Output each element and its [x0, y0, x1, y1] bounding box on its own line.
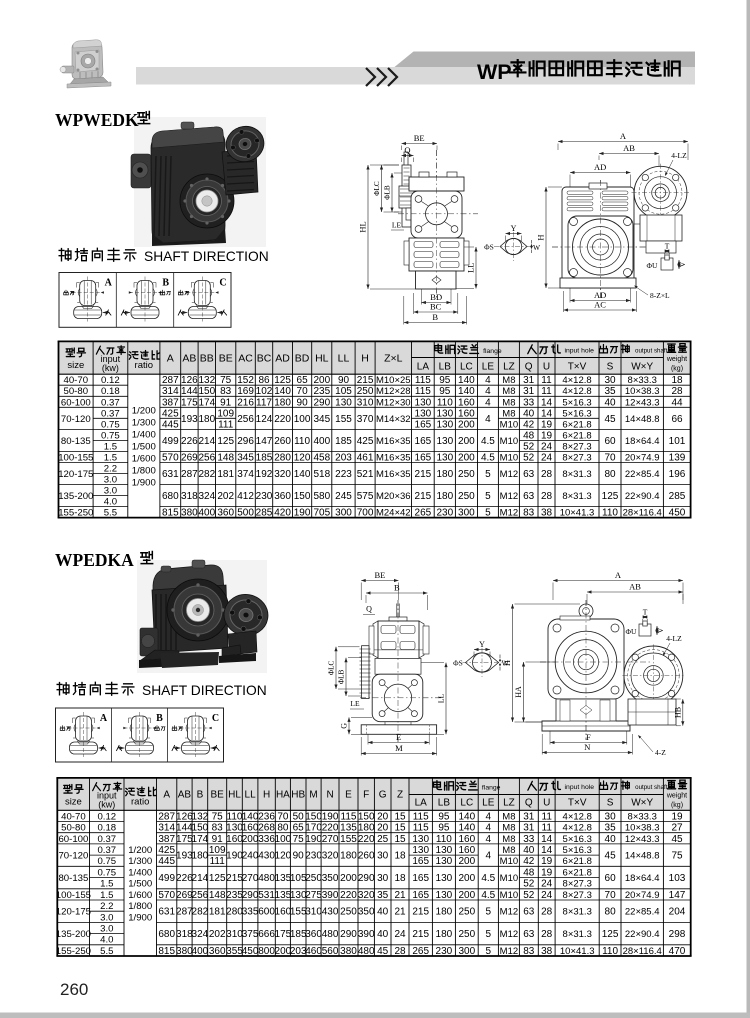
svg-text:S: S: [607, 362, 614, 373]
svg-text:160: 160: [458, 834, 475, 845]
svg-text:461: 461: [357, 452, 374, 463]
svg-text:A: A: [163, 790, 170, 801]
svg-text:180: 180: [436, 491, 453, 502]
svg-text:5: 5: [485, 491, 491, 502]
svg-text:290: 290: [340, 929, 357, 940]
svg-text:M10: M10: [500, 452, 518, 463]
svg-text:180: 180: [436, 907, 453, 918]
svg-text:20: 20: [377, 811, 389, 822]
svg-text:A: A: [105, 278, 113, 289]
svg-text:5: 5: [486, 907, 492, 918]
svg-text:260: 260: [60, 980, 88, 999]
svg-text:ΦLC: ΦLC: [373, 181, 381, 196]
svg-text:256: 256: [237, 414, 254, 425]
svg-text:86: 86: [258, 375, 270, 386]
svg-text:275: 275: [305, 890, 322, 901]
svg-text:6×21.8: 6×21.8: [563, 856, 592, 867]
svg-text:52: 52: [523, 890, 535, 901]
svg-text:31: 31: [523, 375, 535, 386]
svg-text:160: 160: [458, 408, 475, 419]
svg-text:21: 21: [394, 907, 406, 918]
svg-text:3.0: 3.0: [104, 486, 117, 497]
svg-text:180: 180: [358, 823, 375, 834]
svg-text:215: 215: [412, 929, 429, 940]
svg-text:130: 130: [415, 397, 432, 408]
svg-text:N: N: [326, 790, 333, 801]
svg-text:425: 425: [162, 408, 179, 419]
svg-text:314: 314: [162, 386, 179, 397]
svg-text:270: 270: [322, 834, 339, 845]
svg-text:input hole: input hole: [564, 348, 594, 355]
svg-text:50: 50: [293, 811, 305, 822]
svg-text:LL: LL: [245, 790, 257, 801]
svg-text:220: 220: [322, 823, 339, 834]
svg-text:24: 24: [541, 890, 553, 901]
svg-text:M12: M12: [500, 491, 518, 502]
svg-text:165: 165: [412, 890, 429, 901]
svg-text:SHAFT DIRECTION: SHAFT DIRECTION: [142, 683, 267, 698]
svg-text:A: A: [167, 353, 174, 365]
svg-text:130: 130: [436, 873, 453, 884]
svg-text:HA: HA: [514, 686, 523, 698]
svg-text:27: 27: [671, 823, 683, 834]
svg-text:4-LZ: 4-LZ: [666, 634, 682, 643]
svg-text:A: A: [620, 131, 627, 141]
svg-text:M8: M8: [502, 811, 515, 822]
svg-text:35: 35: [604, 386, 616, 397]
svg-text:18×64.4: 18×64.4: [625, 873, 660, 884]
svg-text:140: 140: [274, 386, 291, 397]
svg-text:M12×28: M12×28: [376, 386, 411, 397]
svg-text:2.2: 2.2: [100, 901, 113, 912]
svg-text:(kw): (kw): [98, 799, 115, 809]
svg-text:BC: BC: [257, 353, 272, 365]
svg-text:18×64.4: 18×64.4: [625, 436, 660, 447]
svg-text:260: 260: [358, 851, 375, 862]
svg-text:287: 287: [158, 811, 175, 822]
svg-text:1/400: 1/400: [132, 429, 156, 440]
svg-text:4×12.8: 4×12.8: [563, 823, 592, 834]
svg-text:374: 374: [237, 469, 254, 480]
svg-text:631: 631: [158, 907, 175, 918]
svg-text:52: 52: [523, 441, 535, 452]
svg-text:B: B: [197, 790, 204, 801]
svg-text:174: 174: [192, 834, 209, 845]
svg-text:110: 110: [436, 834, 452, 845]
svg-text:45: 45: [671, 834, 683, 845]
svg-text:ratio: ratio: [135, 360, 153, 371]
svg-text:E: E: [396, 732, 401, 742]
svg-text:370: 370: [357, 414, 374, 425]
svg-text:215: 215: [415, 491, 432, 502]
svg-text:130: 130: [436, 436, 453, 447]
svg-text:600: 600: [258, 907, 275, 918]
svg-text:165: 165: [415, 452, 432, 463]
svg-text:3.0: 3.0: [100, 924, 113, 935]
svg-text:14: 14: [541, 397, 553, 408]
svg-text:40: 40: [377, 907, 389, 918]
svg-text:1/200: 1/200: [132, 405, 156, 416]
svg-text:110: 110: [227, 811, 243, 822]
svg-text:2.2: 2.2: [104, 464, 117, 475]
svg-text:M: M: [309, 790, 317, 801]
svg-text:155: 155: [335, 414, 352, 425]
svg-text:14×48.8: 14×48.8: [625, 414, 660, 425]
svg-text:109: 109: [217, 408, 234, 419]
svg-text:BB: BB: [200, 353, 214, 365]
svg-text:202: 202: [209, 929, 226, 940]
svg-text:33: 33: [523, 834, 535, 845]
svg-text:256: 256: [192, 890, 209, 901]
svg-text:8×31.3: 8×31.3: [562, 469, 591, 480]
svg-text:215: 215: [226, 873, 243, 884]
svg-text:B: B: [162, 278, 169, 289]
svg-text:20: 20: [377, 823, 389, 834]
svg-text:BE: BE: [211, 790, 225, 801]
svg-text:19: 19: [541, 419, 553, 430]
svg-text:200: 200: [458, 873, 475, 884]
svg-text:42: 42: [523, 419, 535, 430]
svg-text:LE: LE: [482, 798, 495, 809]
svg-text:15: 15: [394, 823, 406, 834]
svg-text:24: 24: [541, 879, 553, 890]
svg-text:181: 181: [217, 469, 234, 480]
svg-text:45: 45: [605, 851, 617, 862]
svg-text:11: 11: [542, 823, 553, 834]
svg-text:375: 375: [242, 929, 259, 940]
svg-text:100-155: 100-155: [56, 890, 91, 901]
svg-text:M20×36: M20×36: [376, 491, 411, 502]
svg-text:190: 190: [226, 851, 243, 862]
svg-text:80-135: 80-135: [61, 436, 91, 447]
svg-text:200: 200: [313, 375, 330, 386]
svg-text:52: 52: [523, 452, 535, 463]
svg-text:115: 115: [415, 386, 431, 397]
svg-text:M10×25: M10×25: [376, 375, 411, 386]
svg-text:204: 204: [669, 907, 686, 918]
svg-text:F: F: [363, 790, 369, 801]
svg-text:148: 148: [217, 452, 234, 463]
svg-text:M12: M12: [500, 469, 518, 480]
svg-text:95: 95: [438, 823, 450, 834]
svg-text:150: 150: [192, 823, 209, 834]
svg-text:240: 240: [242, 851, 259, 862]
svg-text:135-200: 135-200: [58, 491, 93, 502]
svg-text:269: 269: [181, 452, 198, 463]
svg-text:SHAFT DIRECTION: SHAFT DIRECTION: [144, 249, 269, 264]
svg-text:125: 125: [602, 929, 619, 940]
svg-text:ΦS: ΦS: [453, 659, 463, 668]
svg-text:H: H: [361, 353, 369, 365]
svg-text:1/600: 1/600: [128, 890, 152, 901]
svg-text:60-100: 60-100: [61, 397, 91, 408]
svg-text:0.75: 0.75: [101, 430, 120, 441]
svg-text:40: 40: [523, 845, 535, 856]
svg-text:M16×35: M16×35: [376, 452, 411, 463]
svg-text:HA: HA: [276, 790, 290, 801]
svg-text:4×12.8: 4×12.8: [562, 375, 591, 386]
svg-text:HB: HB: [673, 707, 682, 718]
svg-text:180: 180: [340, 851, 357, 862]
svg-text:320: 320: [358, 890, 375, 901]
svg-text:70-120: 70-120: [61, 414, 91, 425]
svg-text:75: 75: [212, 811, 224, 822]
svg-text:320: 320: [274, 469, 291, 480]
svg-text:80-135: 80-135: [58, 873, 88, 884]
svg-text:200: 200: [458, 436, 475, 447]
svg-text:130: 130: [436, 856, 453, 867]
svg-text:215: 215: [357, 375, 374, 386]
svg-text:LA: LA: [415, 798, 428, 809]
svg-text:5×16.3: 5×16.3: [562, 397, 591, 408]
svg-text:140: 140: [294, 469, 311, 480]
svg-text:flange: flange: [482, 785, 501, 792]
svg-text:4: 4: [486, 823, 492, 834]
svg-text:102: 102: [256, 386, 273, 397]
svg-text:14: 14: [541, 408, 553, 419]
svg-text:30: 30: [604, 375, 616, 386]
svg-text:0.75: 0.75: [97, 867, 116, 878]
svg-text:345: 345: [237, 452, 254, 463]
svg-text:input hole: input hole: [565, 784, 595, 791]
svg-text:HL: HL: [315, 353, 329, 365]
svg-text:100: 100: [275, 834, 292, 845]
svg-text:115: 115: [413, 823, 429, 834]
svg-text:WP: WP: [477, 60, 512, 84]
svg-text:6×21.8: 6×21.8: [562, 419, 591, 430]
svg-text:M14×32: M14×32: [376, 414, 411, 425]
svg-text:M10: M10: [500, 419, 518, 430]
svg-text:250: 250: [458, 907, 475, 918]
svg-text:165: 165: [415, 419, 432, 430]
svg-text:140: 140: [458, 386, 475, 397]
svg-text:196: 196: [669, 469, 686, 480]
svg-text:499: 499: [158, 873, 175, 884]
svg-text:1/600: 1/600: [132, 453, 156, 464]
svg-text:Q: Q: [366, 605, 372, 614]
svg-text:360: 360: [305, 929, 322, 940]
svg-text:M16×35: M16×35: [376, 436, 411, 447]
svg-text:570: 570: [162, 452, 179, 463]
svg-text:336: 336: [258, 834, 275, 845]
svg-text:63: 63: [523, 491, 535, 502]
svg-text:24: 24: [394, 929, 406, 940]
svg-text:70: 70: [604, 452, 616, 463]
svg-text:250: 250: [305, 873, 322, 884]
svg-text:310: 310: [305, 907, 322, 918]
svg-text:345: 345: [313, 414, 330, 425]
svg-text:290: 290: [313, 397, 330, 408]
svg-text:120: 120: [275, 851, 292, 862]
svg-text:430: 430: [258, 851, 275, 862]
svg-text:flange: flange: [483, 348, 502, 355]
svg-text:126: 126: [181, 375, 198, 386]
svg-text:350: 350: [358, 907, 375, 918]
svg-text:230: 230: [305, 851, 322, 862]
svg-text:0.37: 0.37: [97, 834, 116, 845]
svg-text:75: 75: [293, 834, 305, 845]
svg-text:480: 480: [322, 929, 339, 940]
svg-text:H: H: [263, 790, 270, 801]
svg-text:8-Z×L: 8-Z×L: [650, 291, 670, 300]
svg-text:412: 412: [237, 491, 254, 502]
svg-text:28: 28: [541, 929, 553, 940]
svg-text:132: 132: [198, 375, 215, 386]
svg-text:M: M: [395, 743, 403, 753]
svg-text:Z: Z: [397, 790, 403, 801]
svg-text:4: 4: [486, 851, 492, 862]
svg-text:160: 160: [458, 845, 475, 856]
svg-text:19: 19: [541, 867, 553, 878]
svg-text:268: 268: [258, 823, 275, 834]
svg-text:8×27.3: 8×27.3: [563, 890, 592, 901]
svg-text:216: 216: [237, 397, 254, 408]
svg-text:1.5: 1.5: [100, 890, 113, 901]
svg-text:83: 83: [212, 823, 224, 834]
svg-text:4×12.8: 4×12.8: [563, 811, 592, 822]
svg-text:260: 260: [274, 436, 291, 447]
svg-text:160: 160: [242, 823, 259, 834]
svg-text:Q: Q: [404, 145, 410, 155]
svg-text:20×74.9: 20×74.9: [625, 452, 660, 463]
svg-text:24: 24: [541, 441, 553, 452]
svg-text:318: 318: [181, 491, 198, 502]
svg-text:190: 190: [305, 834, 322, 845]
svg-text:5×16.3: 5×16.3: [563, 834, 592, 845]
svg-text:1.5: 1.5: [104, 441, 117, 452]
svg-text:3.0: 3.0: [104, 475, 117, 486]
svg-text:28: 28: [671, 386, 683, 397]
svg-text:M8: M8: [502, 823, 515, 834]
svg-text:109: 109: [209, 845, 226, 856]
svg-text:8×31.3: 8×31.3: [562, 491, 591, 502]
svg-text:4.5: 4.5: [481, 436, 495, 447]
svg-text:174: 174: [198, 397, 215, 408]
svg-text:ΦLC: ΦLC: [328, 660, 336, 675]
svg-text:90: 90: [293, 851, 305, 862]
svg-text:0.18: 0.18: [101, 386, 120, 397]
svg-text:18: 18: [394, 873, 406, 884]
svg-text:80: 80: [277, 823, 289, 834]
svg-text:165: 165: [415, 436, 432, 447]
svg-text:215: 215: [415, 469, 432, 480]
svg-text:ΦLB: ΦLB: [384, 185, 392, 200]
svg-text:W×Y: W×Y: [631, 362, 653, 373]
svg-text:BE: BE: [374, 570, 385, 580]
svg-text:250: 250: [458, 929, 475, 940]
svg-text:0.18: 0.18: [97, 823, 116, 834]
svg-text:LC: LC: [460, 362, 473, 373]
svg-text:111: 111: [210, 856, 226, 867]
svg-text:445: 445: [162, 419, 179, 430]
svg-text:290: 290: [242, 890, 259, 901]
svg-text:282: 282: [198, 469, 215, 480]
svg-text:21: 21: [394, 890, 406, 901]
svg-text:140: 140: [458, 375, 475, 386]
svg-text:180: 180: [274, 397, 291, 408]
svg-text:220: 220: [274, 414, 291, 425]
svg-text:18: 18: [394, 851, 406, 862]
svg-text:40: 40: [377, 929, 389, 940]
svg-text:19: 19: [671, 811, 683, 822]
svg-text:83: 83: [220, 386, 232, 397]
svg-text:30: 30: [377, 873, 389, 884]
svg-text:weight: weight: [666, 793, 687, 800]
svg-text:120: 120: [294, 452, 311, 463]
svg-text:8×27.3: 8×27.3: [562, 452, 591, 463]
svg-text:output shaft: output shaft: [635, 784, 668, 791]
svg-text:214: 214: [198, 436, 215, 447]
svg-text:4: 4: [486, 834, 492, 845]
svg-text:140: 140: [458, 823, 475, 834]
svg-text:147: 147: [669, 890, 686, 901]
svg-text:185: 185: [335, 436, 352, 447]
svg-text:287: 287: [162, 375, 179, 386]
svg-text:256: 256: [198, 452, 215, 463]
svg-text:LB: LB: [438, 798, 451, 809]
svg-text:70: 70: [297, 386, 309, 397]
svg-text:19: 19: [541, 430, 553, 441]
svg-text:65: 65: [293, 823, 305, 834]
svg-text:8×33.3: 8×33.3: [628, 375, 657, 386]
svg-text:M16×35: M16×35: [376, 469, 411, 480]
svg-text:AB: AB: [178, 790, 192, 801]
svg-text:LA: LA: [417, 362, 430, 373]
svg-text:(kg): (kg): [671, 366, 683, 373]
svg-text:132: 132: [192, 811, 209, 822]
svg-text:200: 200: [458, 890, 475, 901]
svg-text:8×33.3: 8×33.3: [628, 811, 657, 822]
svg-text:22×85.4: 22×85.4: [625, 469, 660, 480]
svg-text:W×Y: W×Y: [631, 798, 653, 809]
svg-text:output shaft: output shaft: [635, 348, 668, 355]
svg-text:5: 5: [486, 929, 492, 940]
svg-text:282: 282: [192, 907, 209, 918]
svg-text:521: 521: [357, 469, 374, 480]
svg-text:518: 518: [313, 469, 330, 480]
svg-text:110: 110: [294, 436, 310, 447]
svg-text:580: 580: [313, 491, 330, 502]
svg-text:570: 570: [158, 890, 175, 901]
svg-text:B: B: [432, 312, 438, 322]
svg-text:214: 214: [192, 873, 209, 884]
svg-text:66: 66: [671, 414, 683, 425]
svg-text:200: 200: [340, 873, 357, 884]
svg-text:HB: HB: [291, 790, 305, 801]
svg-text:weight: weight: [666, 356, 687, 363]
svg-text:324: 324: [198, 491, 215, 502]
svg-text:(kw): (kw): [102, 363, 119, 373]
svg-text:200: 200: [458, 419, 475, 430]
svg-text:0.37: 0.37: [101, 397, 120, 408]
svg-text:60-100: 60-100: [58, 834, 88, 845]
svg-text:15: 15: [394, 811, 406, 822]
svg-text:5×16.3: 5×16.3: [562, 408, 591, 419]
svg-text:120-175: 120-175: [58, 469, 93, 480]
svg-text:5×16.3: 5×16.3: [563, 845, 592, 856]
svg-text:40-70: 40-70: [61, 811, 86, 822]
svg-text:75: 75: [671, 851, 683, 862]
svg-text:50-80: 50-80: [61, 823, 86, 834]
svg-text:90: 90: [338, 375, 350, 386]
svg-text:0.37: 0.37: [101, 408, 120, 419]
svg-text:236: 236: [258, 811, 275, 822]
svg-text:Y: Y: [479, 640, 485, 649]
svg-text:4.0: 4.0: [100, 935, 113, 946]
svg-text:BE: BE: [414, 133, 425, 143]
svg-text:3.0: 3.0: [100, 912, 113, 923]
svg-text:8×27.3: 8×27.3: [563, 879, 592, 890]
